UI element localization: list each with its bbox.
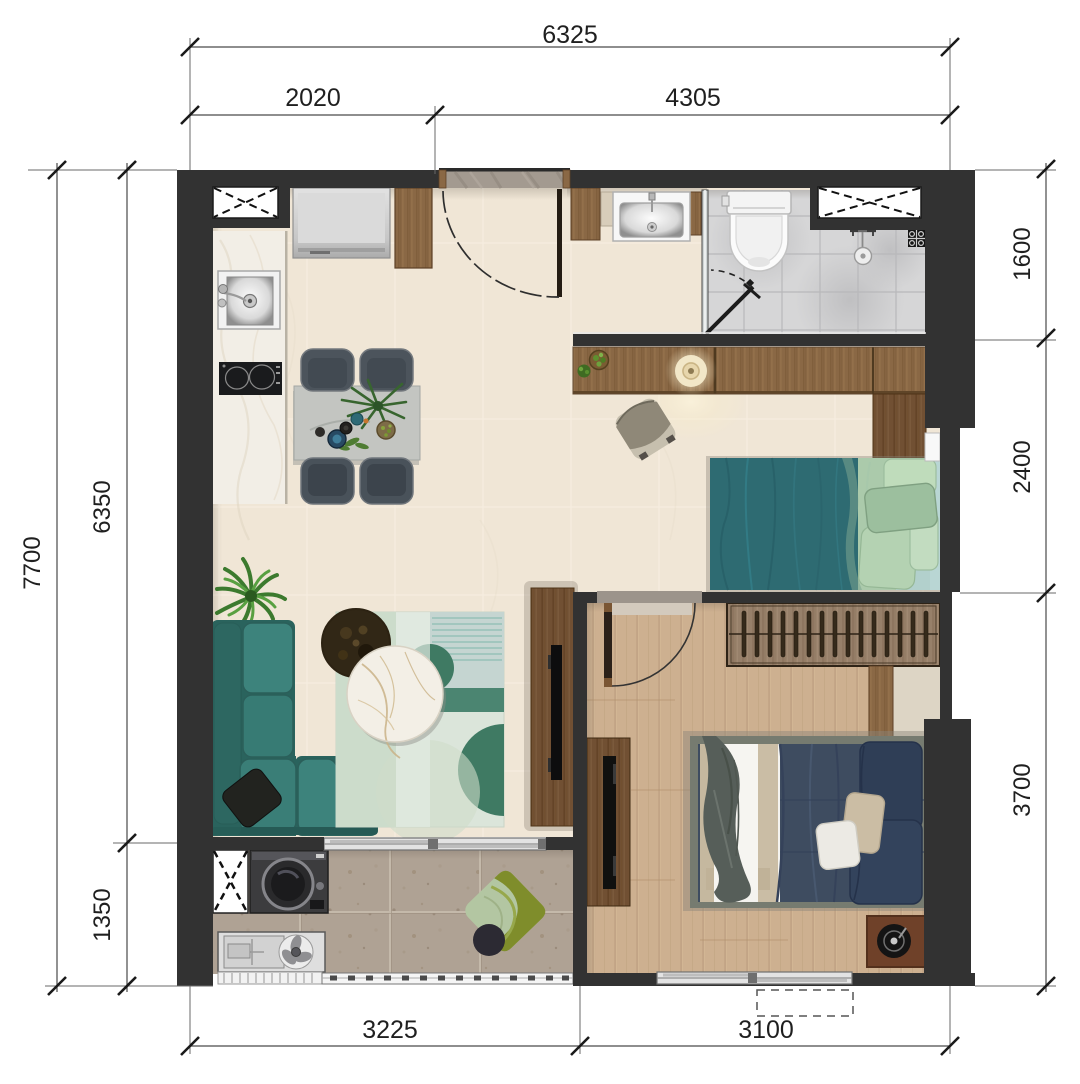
svg-text:2020: 2020 [285, 84, 341, 112]
svg-text:3700: 3700 [1009, 763, 1036, 816]
svg-text:6350: 6350 [89, 480, 116, 533]
svg-text:6325: 6325 [542, 21, 598, 49]
svg-text:1350: 1350 [89, 888, 116, 941]
svg-text:7700: 7700 [19, 536, 46, 589]
svg-text:3225: 3225 [362, 1016, 418, 1044]
svg-text:3100: 3100 [738, 1016, 794, 1044]
svg-text:1600: 1600 [1009, 227, 1036, 280]
svg-text:2400: 2400 [1009, 440, 1036, 493]
svg-text:4305: 4305 [665, 84, 721, 112]
